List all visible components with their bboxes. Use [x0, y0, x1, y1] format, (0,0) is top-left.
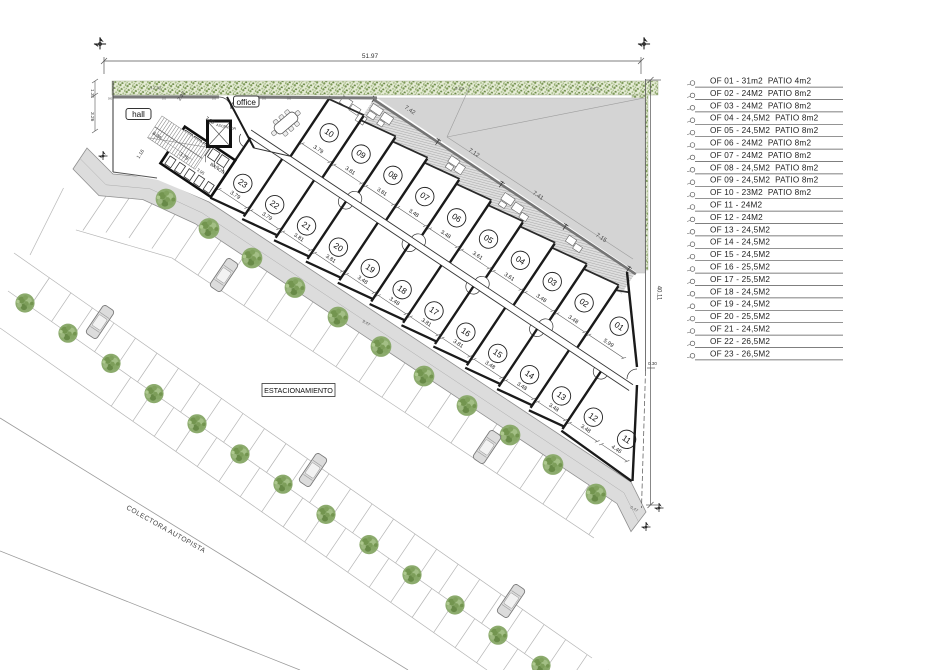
svg-text:OF 21 - 24,5M2: OF 21 - 24,5M2 [710, 325, 770, 334]
svg-text:OF 19 - 24,5M2: OF 19 - 24,5M2 [710, 300, 770, 309]
svg-text:H: H [162, 96, 165, 101]
svg-text:H: H [212, 96, 215, 101]
svg-text:OF 03 - 24M2 PATIO 8m2: OF 03 - 24M2 PATIO 8m2 [710, 101, 811, 110]
svg-text:H: H [262, 96, 265, 101]
svg-text:40.11: 40.11 [656, 286, 662, 301]
svg-text:OF 04 - 24,5M2 PATIO 8m2: OF 04 - 24,5M2 PATIO 8m2 [710, 114, 819, 123]
svg-text:3.26: 3.26 [89, 112, 95, 122]
svg-text:OF 06 - 24M2 PATIO 8m2: OF 06 - 24M2 PATIO 8m2 [710, 139, 811, 148]
svg-text:OF 08 - 24,5M2 PATIO 8m2: OF 08 - 24,5M2 PATIO 8m2 [710, 163, 819, 172]
svg-text:OF 12 - 24M2: OF 12 - 24M2 [710, 213, 763, 222]
svg-text:OF 20 - 25,5M2: OF 20 - 25,5M2 [710, 312, 770, 321]
svg-text:9.02: 9.02 [455, 86, 464, 91]
svg-text:OF 02 - 24M2 PATIO 8m2: OF 02 - 24M2 PATIO 8m2 [710, 89, 811, 98]
svg-text:hall: hall [132, 110, 145, 119]
svg-text:1.31: 1.31 [89, 89, 95, 99]
svg-text:OF 15 - 24,5M2: OF 15 - 24,5M2 [710, 250, 770, 259]
svg-text:OF 13 - 24,5M2: OF 13 - 24,5M2 [710, 225, 770, 234]
svg-text:OF 09 - 24,5M2 PATIO 8m2: OF 09 - 24,5M2 PATIO 8m2 [710, 176, 819, 185]
svg-text:ESTACIONAMIENTO: ESTACIONAMIENTO [264, 386, 333, 395]
svg-text:OF 10 - 23M2 PATIO 8m2: OF 10 - 23M2 PATIO 8m2 [710, 188, 811, 197]
svg-text:OF 16 - 25,5M2: OF 16 - 25,5M2 [710, 263, 770, 272]
svg-text:office: office [236, 98, 256, 107]
svg-text:OF 07 - 24M2 PATIO 8m2: OF 07 - 24M2 PATIO 8m2 [710, 151, 811, 160]
svg-text:51.97: 51.97 [362, 53, 379, 60]
svg-text:H: H [287, 96, 290, 101]
svg-text:12.38: 12.38 [150, 85, 162, 91]
svg-text:OF 11 - 24M2: OF 11 - 24M2 [710, 201, 763, 210]
svg-text:OF 22 - 26,5M2: OF 22 - 26,5M2 [710, 337, 770, 346]
svg-text:OF 18 - 24,5M2: OF 18 - 24,5M2 [710, 287, 770, 296]
svg-text:OF 14 - 24,5M2: OF 14 - 24,5M2 [710, 238, 770, 247]
svg-text:0.30: 0.30 [648, 361, 657, 366]
svg-text:OF 01 - 31m2 PATIO 4m2: OF 01 - 31m2 PATIO 4m2 [710, 77, 811, 86]
svg-text:H: H [108, 96, 111, 101]
svg-text:OF 05 - 24,5M2 PATIO 8m2: OF 05 - 24,5M2 PATIO 8m2 [710, 126, 819, 135]
svg-text:OF 17 - 25,5M2: OF 17 - 25,5M2 [710, 275, 770, 284]
svg-text:9.72: 9.72 [590, 86, 599, 91]
svg-text:OF 23 - 26,5M2: OF 23 - 26,5M2 [710, 349, 770, 358]
